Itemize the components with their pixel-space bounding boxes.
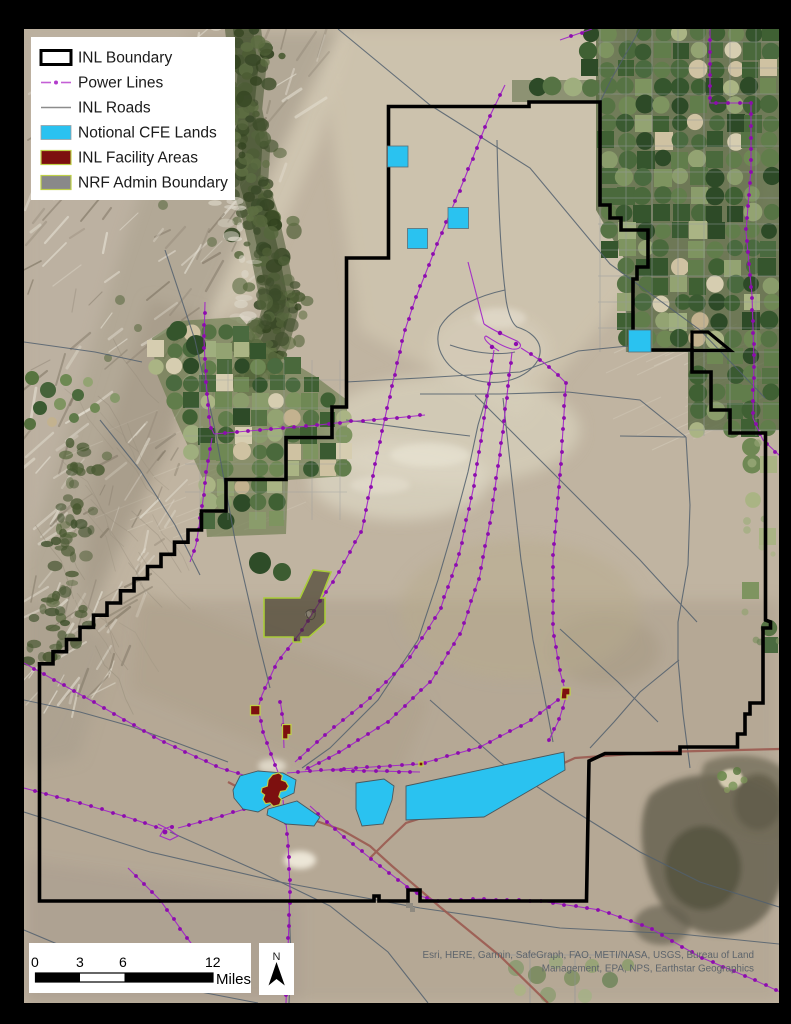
svg-text:INL Facility Areas: INL Facility Areas [78,150,198,167]
svg-text:Miles: Miles [216,971,251,988]
svg-text:Esri, HERE, Garmin, SafeGraph,: Esri, HERE, Garmin, SafeGraph, FAO, METI… [423,950,754,961]
svg-text:0: 0 [31,954,39,970]
svg-text:Power Lines: Power Lines [78,75,164,92]
svg-text:6: 6 [119,954,127,970]
svg-text:INL Roads: INL Roads [78,100,151,117]
svg-text:N: N [273,951,281,963]
svg-text:Notional CFE Lands: Notional CFE Lands [78,125,217,142]
svg-text:Management, EPA, NPS, Earthsta: Management, EPA, NPS, Earthstar Geograph… [542,964,754,975]
svg-text:12: 12 [205,954,221,970]
svg-text:INL Boundary: INL Boundary [78,50,172,67]
svg-text:3: 3 [76,954,84,970]
svg-text:NRF Admin Boundary: NRF Admin Boundary [78,175,228,192]
